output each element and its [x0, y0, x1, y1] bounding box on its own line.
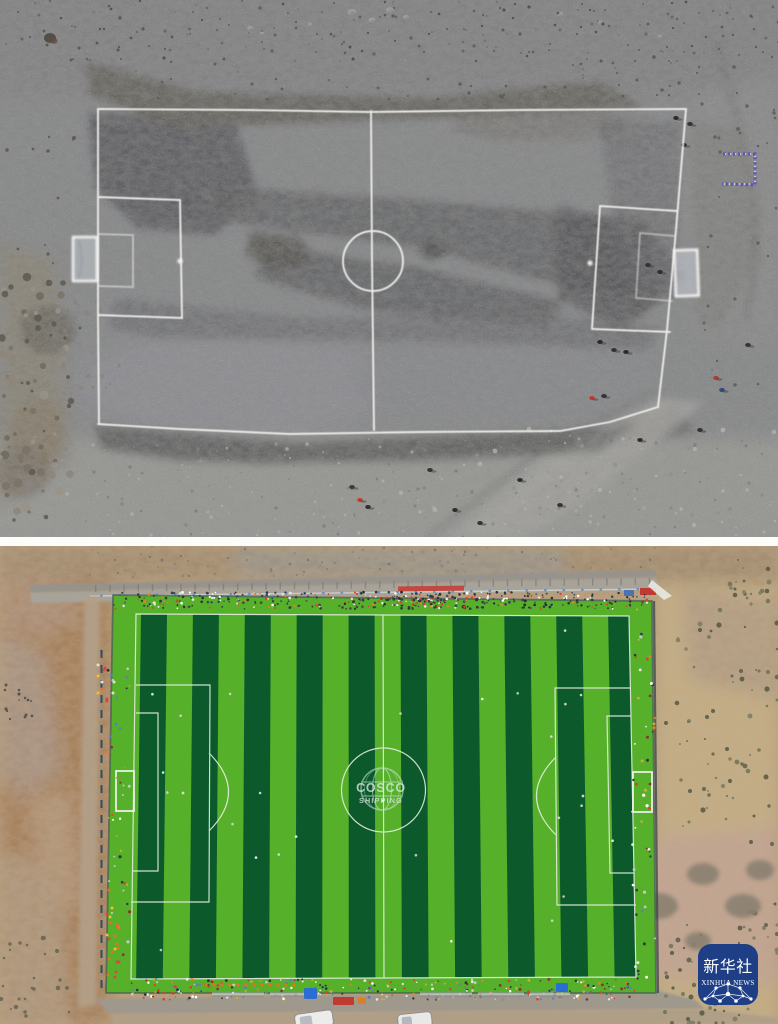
svg-text:COSCO: COSCO — [356, 781, 406, 795]
svg-text:SHIPPING: SHIPPING — [359, 796, 403, 805]
svg-text:新华社: 新华社 — [703, 958, 753, 976]
